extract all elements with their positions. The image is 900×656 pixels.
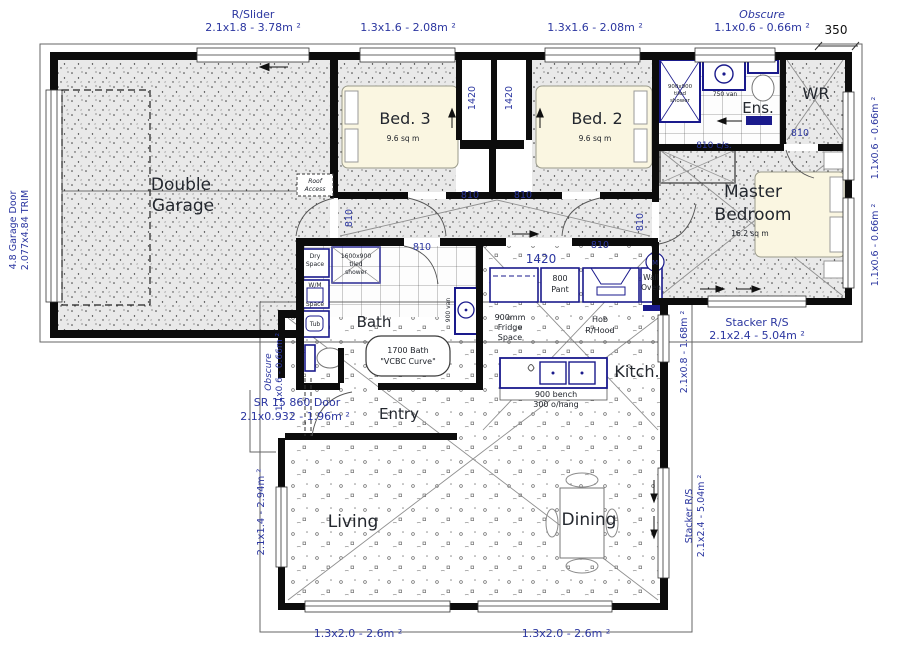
label-bath-shower-3: shower bbox=[345, 269, 367, 276]
ens-toilet bbox=[752, 75, 774, 101]
wc-cistern bbox=[305, 345, 315, 371]
stacker-dining-right bbox=[658, 468, 669, 578]
wall-lower-right-2 bbox=[660, 362, 668, 468]
wall-right-1 bbox=[845, 52, 852, 92]
master-pillow-1 bbox=[830, 177, 843, 212]
window-living-left bbox=[276, 487, 287, 567]
bed2-pillow-1 bbox=[634, 91, 647, 124]
hob-bench bbox=[583, 268, 639, 302]
fridge-space bbox=[490, 268, 538, 302]
bath-basin-drain bbox=[465, 309, 468, 312]
wall-bottom-1 bbox=[278, 603, 305, 610]
wall-lower-left-2 bbox=[278, 438, 285, 487]
wall-bottom-3 bbox=[612, 603, 668, 610]
label-hob-2: R/Hood bbox=[585, 326, 614, 335]
label-bath-shower-1: 1600x900 bbox=[341, 253, 371, 260]
label-living: Living bbox=[328, 512, 379, 532]
label-dining-bottom-window: 1.3x2.0 - 2.6m ² bbox=[522, 627, 611, 640]
label-bath-van: 900 van bbox=[445, 298, 452, 323]
label-bed3-area: 9.6 sq m bbox=[387, 134, 420, 143]
label-ens-shower-2: tiled bbox=[674, 91, 686, 97]
label-bench-1: 900 bench bbox=[535, 390, 577, 399]
label-roof-access-1: Roof bbox=[308, 178, 323, 185]
window-bed3-top bbox=[360, 48, 455, 62]
label-stacker-master: Stacker R/S bbox=[725, 316, 788, 329]
label-living-window: 2.1x1.4 - 2.94m ² bbox=[256, 469, 267, 556]
label-dining: Dining bbox=[562, 510, 617, 530]
garage-floor bbox=[58, 60, 330, 330]
label-ens-shower-1: 900x900 bbox=[668, 84, 693, 90]
label-810cs-robe: 810 c/s. bbox=[696, 141, 732, 151]
label-hob-1: Hob bbox=[592, 315, 608, 324]
bed3-pillow-2 bbox=[345, 129, 358, 162]
window-master-right bbox=[843, 198, 854, 288]
bed3-pillow-1 bbox=[345, 91, 358, 124]
wall-lower-right-1 bbox=[660, 298, 668, 315]
label-dry-2: Space bbox=[306, 261, 325, 268]
label-ens-shower-3: shower bbox=[670, 98, 691, 104]
label-tub-1: 1700 Bath bbox=[387, 346, 429, 355]
label-fridge-2: Fridge bbox=[498, 323, 523, 332]
label-rslider-dim: 2.1x1.8 - 3.78m ² bbox=[205, 21, 301, 34]
ens-basin-drain bbox=[722, 72, 725, 75]
wall-bottom-2 bbox=[450, 603, 478, 610]
label-ensuite: Ens. bbox=[742, 99, 774, 117]
label-stacker-master-dim: 2.1x2.4 - 5.04m ² bbox=[709, 329, 805, 342]
label-bath-shower-2: tiled bbox=[349, 261, 362, 268]
label-kitchen-window: 2.1x0.8 - 1.68m ² bbox=[679, 311, 690, 394]
wall-oven-base bbox=[643, 305, 660, 311]
window-garage-top bbox=[197, 48, 309, 62]
hall-floor bbox=[338, 199, 652, 238]
wall-robe-divider bbox=[491, 52, 497, 140]
wall-master-left-upper bbox=[652, 144, 659, 202]
label-obscure-top-dim: 1.1x0.6 - 0.66m ² bbox=[714, 21, 810, 34]
label-living-bottom-window: 1.3x2.0 - 2.6m ² bbox=[314, 627, 403, 640]
master-pillow-2 bbox=[830, 217, 843, 252]
label-tub-2: "VCBC Curve" bbox=[380, 357, 436, 366]
label-350: 350 bbox=[825, 23, 848, 37]
label-810-bath: 810 bbox=[413, 242, 431, 253]
wall-hall-bottom-1 bbox=[296, 238, 404, 246]
label-garage-door-dim: 2.077x4.84 TRIM bbox=[20, 190, 31, 270]
bed2-pillow-2 bbox=[634, 129, 647, 162]
master-sidetable-2 bbox=[824, 261, 844, 278]
wall-bath-kitchen bbox=[476, 238, 483, 390]
label-oven-1: Wall bbox=[643, 273, 659, 282]
wall-right-3 bbox=[845, 288, 852, 305]
label-bed2-window: 1.3x1.6 - 2.08m ² bbox=[547, 21, 643, 34]
label-bed3-window: 1.3x1.6 - 2.08m ² bbox=[360, 21, 456, 34]
wall-garage-bottom bbox=[50, 330, 302, 338]
wall-ens-wr bbox=[780, 52, 786, 144]
wall-robe-spine bbox=[489, 140, 496, 198]
wall-bath-bottom-1 bbox=[296, 383, 340, 390]
wall-right-2 bbox=[845, 180, 852, 198]
label-master-area: 16.2 sq m bbox=[731, 229, 768, 238]
label-fridge-1: 900mm bbox=[495, 313, 526, 322]
label-bench-2: 300 o/hang bbox=[533, 400, 579, 409]
label-810-garage: 810 bbox=[344, 209, 355, 227]
label-pant-2: Pant bbox=[551, 285, 569, 294]
ens-towel-rail bbox=[746, 116, 772, 125]
label-stacker-dining-dim: 2.1x2.4 - 5.04m ² bbox=[696, 475, 707, 558]
window-wr-right bbox=[843, 92, 854, 180]
label-dry-1: Dry bbox=[310, 253, 321, 260]
label-810-wr: 810 bbox=[791, 128, 809, 139]
wall-hall-top-3 bbox=[600, 192, 658, 199]
label-garage-2: Garage bbox=[152, 196, 214, 216]
label-obscure-top: Obscure bbox=[739, 8, 785, 21]
label-stacker-dining: Stacker R/S bbox=[684, 489, 695, 544]
sink-drain-1 bbox=[552, 372, 555, 375]
floor-plan-page: R/Slider 2.1x1.8 - 3.78m ² 1.3x1.6 - 2.0… bbox=[0, 0, 900, 656]
label-810-kitchen: 810 bbox=[591, 240, 609, 251]
label-tub: Tub bbox=[309, 321, 321, 328]
wall-bed2-ens bbox=[652, 52, 659, 144]
label-bed3: Bed. 3 bbox=[379, 109, 430, 128]
label-bath: Bath bbox=[357, 313, 392, 331]
wall-wc-divider bbox=[338, 348, 344, 383]
floor-plan-drawing: R/Slider 2.1x1.8 - 3.78m ² 1.3x1.6 - 2.0… bbox=[0, 0, 900, 656]
label-master-2: Bedroom bbox=[715, 205, 792, 225]
wall-lower-left-3 bbox=[278, 567, 285, 603]
label-wm-1: W/M bbox=[308, 282, 321, 289]
label-810-master: 810 bbox=[635, 213, 646, 231]
label-sr-door: SR 15 860 Door bbox=[254, 396, 341, 409]
label-master-window: 1.1x0.6 - 0.66m ² bbox=[870, 204, 881, 287]
label-roof-access-2: Access bbox=[304, 186, 326, 193]
wall-hall-bottom-3 bbox=[572, 238, 658, 246]
window-kitchen-right bbox=[658, 315, 669, 362]
label-sr-door-dim: 2.1x0.932 - 1.96m ² bbox=[240, 410, 350, 423]
label-master-1: Master bbox=[724, 182, 782, 202]
label-kitchen: Kitch. bbox=[614, 362, 659, 381]
wall-hall-bottom-2 bbox=[440, 238, 506, 246]
label-1420-robe3: 1420 bbox=[467, 86, 478, 110]
label-810-bed2: 810 bbox=[514, 190, 532, 201]
window-bed2-top bbox=[545, 48, 640, 62]
window-dining-bottom bbox=[478, 601, 612, 612]
stacker-master-bottom bbox=[708, 296, 806, 307]
label-bed2-area: 9.6 sq m bbox=[579, 134, 612, 143]
wall-bed2-robe bbox=[526, 52, 532, 140]
label-entry: Entry bbox=[379, 405, 419, 423]
label-bed2: Bed. 2 bbox=[571, 109, 622, 128]
label-1420-pantry: 1420 bbox=[526, 252, 557, 266]
label-smoke-alarm: M bbox=[652, 259, 658, 267]
dim-350-marks bbox=[815, 42, 859, 50]
label-1420-robe2: 1420 bbox=[504, 86, 515, 110]
window-living-bottom bbox=[305, 601, 450, 612]
label-pant-1: 800 bbox=[552, 274, 567, 283]
wall-bath-bottom-2 bbox=[378, 383, 480, 390]
label-wr-window: 1.1x0.6 - 0.66m ² bbox=[870, 97, 881, 180]
sink-drain-2 bbox=[581, 372, 584, 375]
label-wm-2: Space bbox=[306, 301, 325, 308]
label-rslider: R/Slider bbox=[232, 8, 275, 21]
wall-bed3-robe bbox=[456, 52, 462, 140]
label-ens-van: 750 van bbox=[713, 91, 738, 98]
master-sidetable-1 bbox=[824, 152, 844, 169]
label-garage-door: 4.8 Garage Door bbox=[8, 191, 19, 270]
label-810-bed3: 810 bbox=[461, 190, 479, 201]
label-wr: WR bbox=[803, 84, 830, 103]
wall-hall-top-1 bbox=[338, 192, 408, 199]
label-oven-2: Oven bbox=[641, 283, 661, 292]
bath-tub bbox=[366, 336, 450, 376]
label-fridge-3: Space bbox=[498, 333, 522, 342]
window-ens-top bbox=[695, 48, 775, 62]
label-obscure-left: Obscure bbox=[264, 353, 274, 391]
label-garage-1: Double bbox=[151, 175, 211, 195]
garage-door-opening bbox=[46, 90, 62, 302]
